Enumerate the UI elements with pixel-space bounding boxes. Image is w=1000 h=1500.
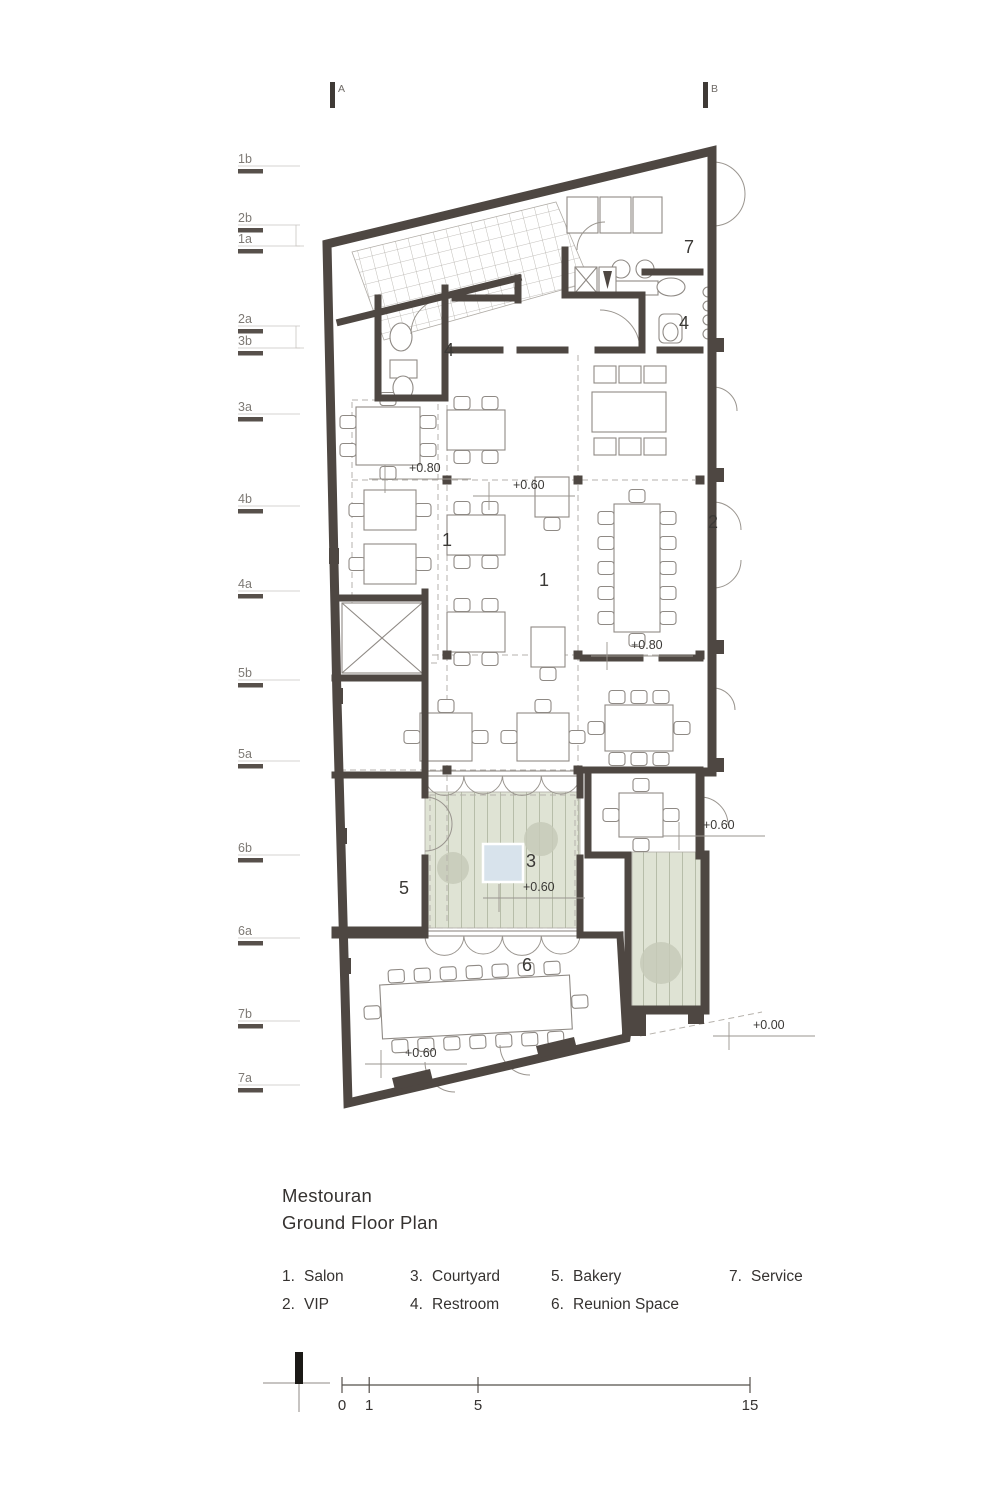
elevation-marker-label: +0.60 [523, 880, 555, 894]
legend-item-number: 3. [410, 1268, 423, 1285]
legend-item-name: Courtyard [432, 1268, 500, 1285]
grid-line-label: 2b [238, 211, 252, 225]
north-marker [263, 1352, 330, 1412]
legend-item-number: 6. [551, 1296, 564, 1313]
grid-line-label: 5a [238, 747, 252, 761]
tree-icon [437, 852, 469, 884]
room-number-label: 7 [684, 237, 694, 257]
grid-line-label: 3b [238, 334, 252, 348]
banquette [592, 366, 666, 455]
grid-line-label: 3a [238, 400, 252, 414]
scale-tick-label: 5 [474, 1397, 482, 1414]
legend-item-number: 5. [551, 1268, 564, 1285]
pool [483, 844, 523, 882]
project-title: Mestouran [282, 1185, 372, 1206]
legend-item-name: Salon [304, 1268, 344, 1285]
scale-bar: 01515 [263, 1352, 758, 1414]
elevation-marker-label: +0.60 [703, 818, 735, 832]
room-number-label: 1 [539, 570, 549, 590]
grid-line-label: 4a [238, 577, 252, 591]
legend-item-name: Bakery [573, 1268, 621, 1285]
legend-item-name: VIP [304, 1296, 329, 1313]
scale-tick-label: 15 [742, 1397, 759, 1414]
grid-line-label: 6b [238, 841, 252, 855]
elevation-marker-label: +0.60 [513, 478, 545, 492]
room-number-label: 5 [399, 878, 409, 898]
floor-plan-drawing: AB 1b2b1a2a3b3a4b4a5b5a6b6a7b7a 74411235… [0, 0, 1000, 1500]
elevation-marker-label: +0.60 [405, 1046, 437, 1060]
section-cut-label: A [338, 83, 345, 95]
room-number-label: 6 [522, 955, 532, 975]
basin-icon [390, 323, 412, 351]
grid-line-label: 5b [238, 666, 252, 680]
section-cut-marker [330, 82, 335, 108]
tree-icon [640, 942, 682, 984]
room-legend: 1.Salon2.VIP3.Courtyard4.Restroom5.Baker… [282, 1268, 803, 1313]
legend-item-number: 4. [410, 1296, 423, 1313]
section-cut-marker [703, 82, 708, 108]
room-number-label: 1 [442, 530, 452, 550]
legend-item-name: Restroom [432, 1296, 499, 1313]
room-number-label: 4 [679, 313, 689, 333]
grid-labels: 1b2b1a2a3b3a4b4a5b5a6b6a7b7a [238, 152, 304, 1093]
grid-line-label: 4b [238, 492, 252, 506]
void-shaft [342, 603, 422, 673]
basin-icon [657, 278, 685, 296]
grid-line-label: 7a [238, 1071, 252, 1085]
grid-line-label: 1a [238, 232, 252, 246]
floor-plan-sheet: AB 1b2b1a2a3b3a4b4a5b5a6b6a7b7a 74411235… [0, 0, 1000, 1500]
scale-tick-label: 1 [365, 1397, 373, 1414]
title-block: Mestouran Ground Floor Plan [282, 1185, 438, 1233]
room-number-label: 3 [526, 851, 536, 871]
legend-item-number: 2. [282, 1296, 295, 1313]
elevation-marker-label: +0.00 [753, 1018, 785, 1032]
room-number-label: 4 [444, 340, 454, 360]
grid-line-label: 6a [238, 924, 252, 938]
section-markers: AB [330, 82, 718, 108]
legend-item-number: 1. [282, 1268, 295, 1285]
legend-item-name: Reunion Space [573, 1296, 679, 1313]
legend-item-name: Service [751, 1268, 803, 1285]
legend-item-number: 7. [729, 1268, 742, 1285]
grid-line-label: 2a [238, 312, 252, 326]
service-counters [567, 197, 662, 295]
toilet-icon [390, 360, 417, 378]
elevation-marker-label: +0.80 [409, 461, 441, 475]
section-cut-label: B [711, 83, 718, 95]
grid-line-label: 7b [238, 1007, 252, 1021]
elevation-marker-label: +0.80 [631, 638, 663, 652]
room-number-label: 2 [708, 512, 718, 532]
drawing-title: Ground Floor Plan [282, 1212, 438, 1233]
scale-tick-label: 0 [338, 1397, 346, 1414]
grid-line-label: 1b [238, 152, 252, 166]
stair-hatch [352, 202, 590, 340]
